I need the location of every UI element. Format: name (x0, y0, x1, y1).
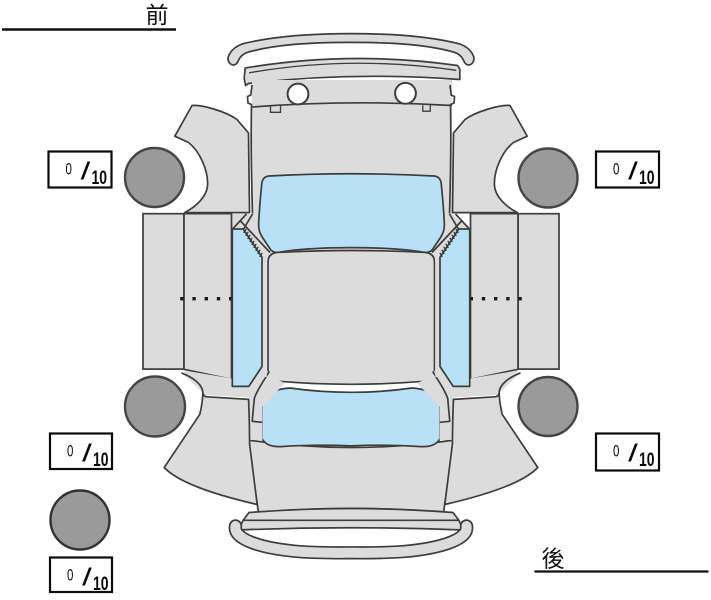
svg-text:10: 10 (93, 450, 109, 471)
svg-text:10: 10 (93, 574, 109, 595)
svg-text:0: 0 (613, 161, 619, 179)
svg-text:前: 前 (146, 2, 169, 28)
svg-text:0: 0 (67, 567, 73, 585)
svg-text:後: 後 (542, 546, 565, 572)
svg-text:10: 10 (639, 450, 655, 471)
svg-text:10: 10 (92, 168, 108, 189)
svg-text:0: 0 (613, 443, 619, 461)
svg-text:0: 0 (67, 443, 73, 461)
svg-text:10: 10 (639, 168, 655, 189)
svg-text:0: 0 (66, 161, 72, 179)
